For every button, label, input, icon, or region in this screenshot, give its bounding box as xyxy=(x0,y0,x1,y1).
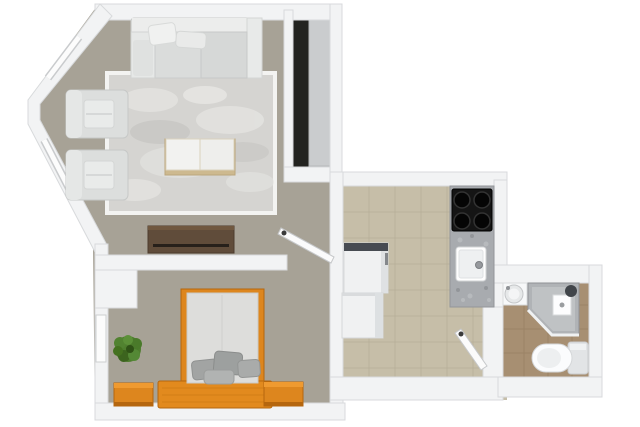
wall-kitchen-bottom xyxy=(330,377,503,400)
shower-column-dot xyxy=(560,303,565,308)
living-room-door-handle xyxy=(282,231,287,236)
burner-icon xyxy=(474,213,490,229)
coffee-table-top-left xyxy=(166,139,200,170)
sofa-arm-right xyxy=(247,18,262,78)
nightstand-left xyxy=(114,383,153,406)
coffee-table xyxy=(165,139,235,175)
washbasin-bowl-inner xyxy=(509,289,520,300)
nightstand-right xyxy=(264,382,303,406)
nightstand-right-top xyxy=(264,382,303,387)
floor-plan-svg xyxy=(0,0,640,427)
coffee-table-top-right xyxy=(200,139,234,170)
washing-machine xyxy=(342,293,383,338)
kitchen-sink xyxy=(456,247,486,281)
bedroom-window-icon xyxy=(96,315,106,362)
tv-stand xyxy=(148,226,234,253)
wall-nook-right xyxy=(330,4,342,182)
nightstand-left-top xyxy=(114,383,153,388)
shower-head-icon xyxy=(565,285,577,297)
tv-stand-shelf xyxy=(153,244,229,247)
wall-bathroom-top xyxy=(494,265,602,283)
wardrobe-panel xyxy=(309,16,330,166)
tv-stand-top-highlight xyxy=(148,226,234,230)
armchair-1-back xyxy=(66,90,82,138)
sofa-seat-right xyxy=(201,32,247,78)
bed-pillow-4 xyxy=(204,370,234,384)
burner-icon xyxy=(454,192,470,208)
toilet-tank-top xyxy=(570,344,586,350)
burner-icon xyxy=(474,192,490,208)
kitchen-door-handle xyxy=(459,332,464,337)
refrigerator xyxy=(344,243,388,293)
sofa-chaise-cushion xyxy=(133,40,153,76)
faucet-icon xyxy=(476,262,483,269)
tv-stand-body xyxy=(148,226,234,253)
refrigerator-handle xyxy=(385,253,388,265)
nightstand-right-shade xyxy=(264,402,303,406)
wall-kitchen-top xyxy=(330,172,507,186)
faucet-icon xyxy=(506,286,510,290)
wall-living-bedroom xyxy=(95,255,287,270)
toilet-seat xyxy=(537,348,561,368)
sofa-pillow-2 xyxy=(175,31,206,49)
sofa-pillow-1 xyxy=(148,22,178,46)
washbasin xyxy=(503,283,527,305)
wall-bathroom-bottom xyxy=(498,377,602,397)
wall-kitchen-bath-strip xyxy=(494,283,503,307)
armchair-1 xyxy=(66,90,128,138)
refrigerator-top xyxy=(344,243,388,251)
cooktop xyxy=(452,189,492,231)
wall-kitchen-right-upper xyxy=(494,180,507,272)
armchair-2 xyxy=(66,150,128,200)
washing-machine-side-shade xyxy=(375,293,383,338)
floor-plan-render xyxy=(0,0,640,427)
toilet xyxy=(532,342,588,374)
sofa xyxy=(131,18,262,78)
bed-pillow-3 xyxy=(237,359,260,377)
wall-nook-left xyxy=(284,10,293,182)
armchair-2-back xyxy=(66,150,82,200)
burner-icon xyxy=(454,213,470,229)
nightstand-left-shade xyxy=(114,402,153,406)
